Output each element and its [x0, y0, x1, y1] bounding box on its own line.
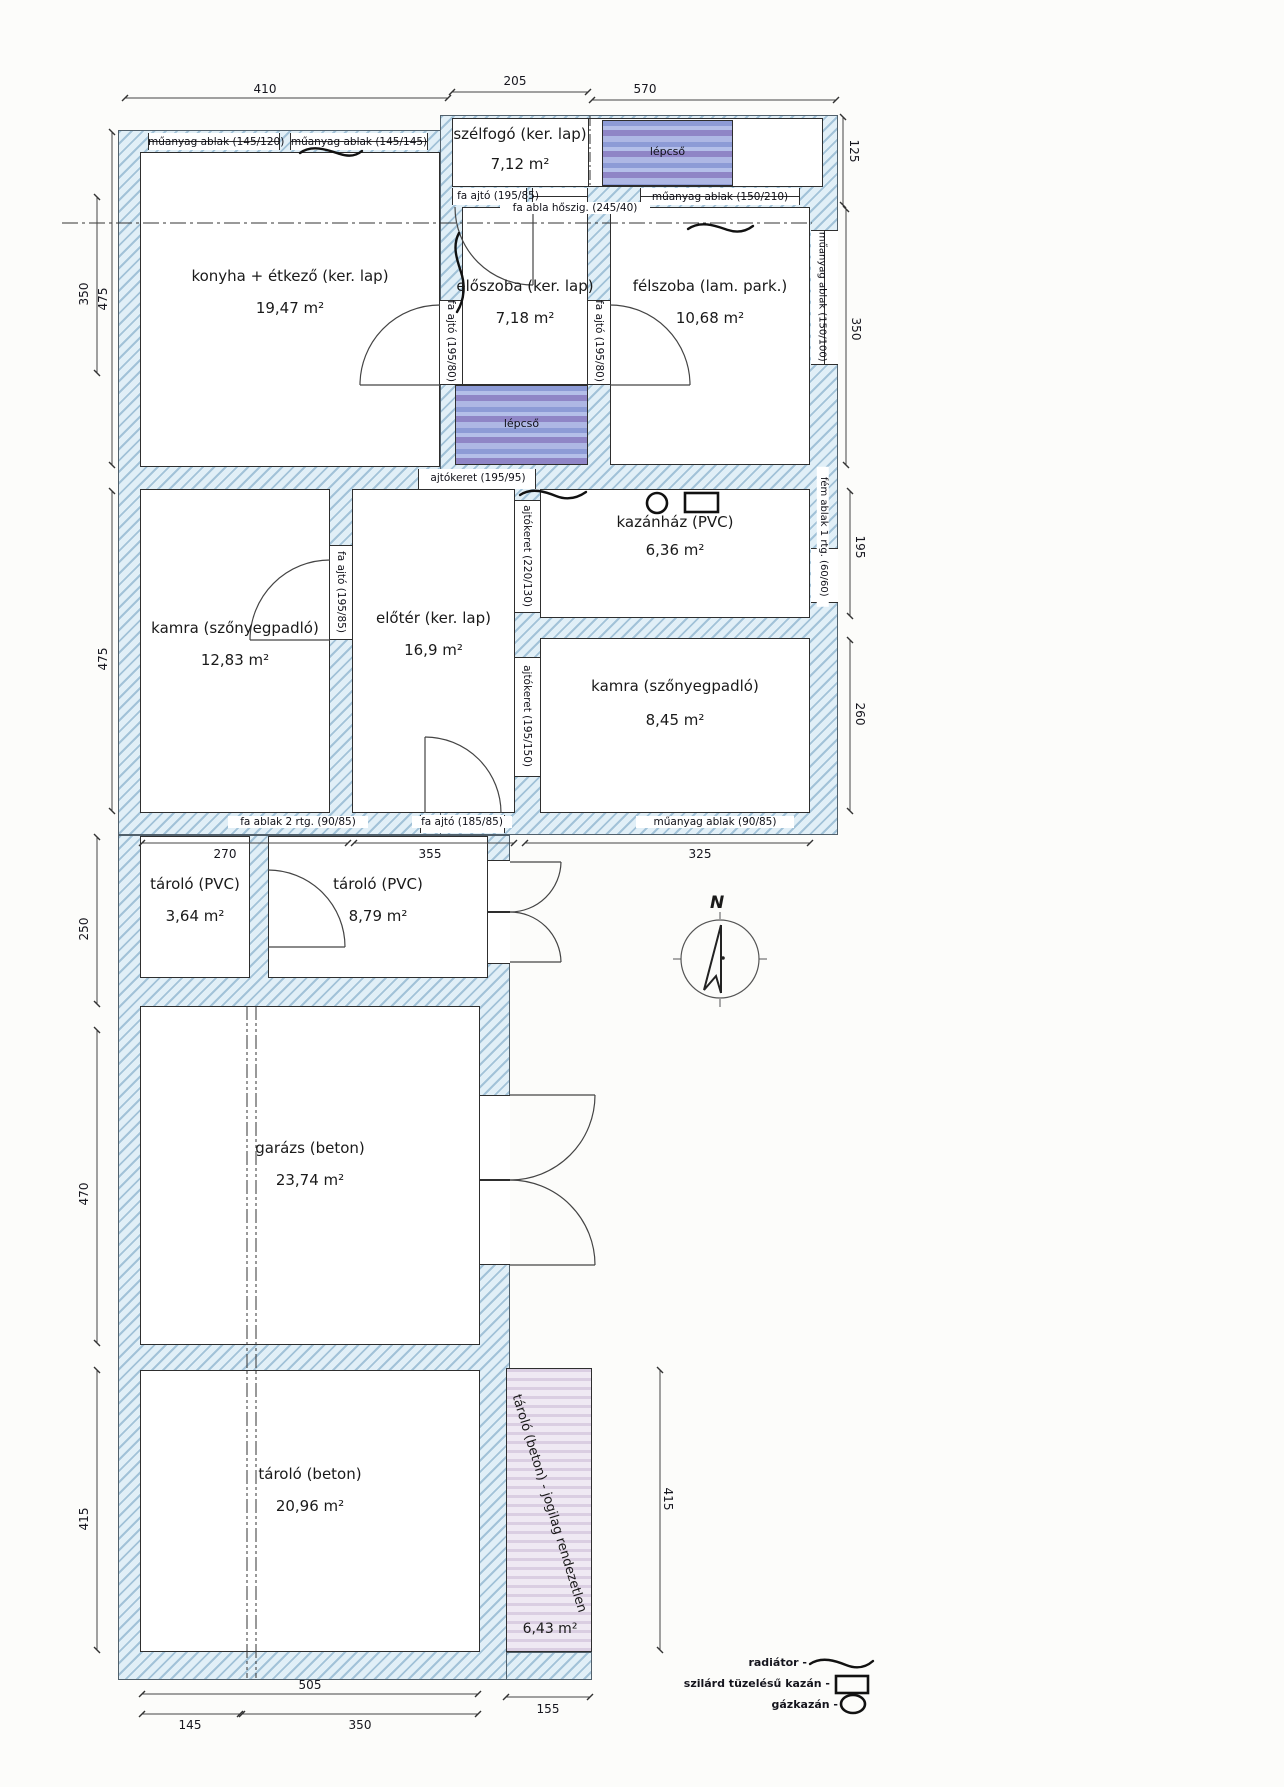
- dim-475-bottom: 475: [96, 639, 110, 679]
- room-label-tarolo364: tároló (PVC): [132, 876, 258, 893]
- room-label-szelfogo: szélfogó (ker. lap): [452, 126, 588, 143]
- room-area-tarolo364: 3,64 m²: [140, 908, 250, 925]
- room-area-felszoba: 10,68 m²: [610, 310, 810, 327]
- room-label-eloszoba: előszoba (ker. lap): [447, 278, 603, 295]
- door-arc-t879-a: [510, 862, 561, 912]
- room-area-eloszoba: 7,18 m²: [462, 310, 588, 327]
- legend-solid-boiler-symbol: [836, 1676, 868, 1693]
- stairs-label-middle: lépcső: [455, 418, 588, 431]
- dim-125: 125: [847, 131, 861, 171]
- label-window-felszoba-right: műanyag ablak (150/100): [816, 229, 828, 364]
- label-window-hoszig: fa abla hőszig. (245/40): [500, 202, 650, 214]
- door-arc-t879-b: [510, 912, 561, 962]
- legend-gas-boiler-label: gázkazán -: [560, 1698, 838, 1711]
- room-area-szelfogo: 7,12 m²: [452, 156, 588, 173]
- label-doorframe-lower: ajtókeret (195/150): [521, 661, 533, 771]
- room-label-felszoba: félszoba (lam. park.): [610, 278, 810, 295]
- dim-355: 355: [400, 847, 460, 861]
- room-label-kamra845: kamra (szőnyegpadló): [540, 678, 810, 695]
- dim-470: 470: [77, 1174, 91, 1214]
- label-window-bottom-left: fa ablak 2 rtg. (90/85): [228, 816, 368, 828]
- room-area-tarolo-jogilag: 6,43 m²: [505, 1622, 595, 1637]
- room-label-eloter: előtér (ker. lap): [352, 610, 515, 627]
- dim-415-left: 415: [77, 1499, 91, 1539]
- label-window-bottom-right: műanyag ablak (90/85): [636, 816, 794, 828]
- label-window-lepcso: műanyag ablak (150/210): [638, 191, 802, 203]
- room-area-garazs: 23,74 m²: [140, 1172, 480, 1189]
- room-label-kamra12: kamra (szőnyegpadló): [140, 620, 330, 637]
- dim-350-left: 350: [77, 274, 91, 314]
- dim-570: 570: [625, 82, 665, 96]
- room-area-kamra12: 12,83 m²: [140, 652, 330, 669]
- dim-145: 145: [160, 1718, 220, 1732]
- dim-475-top: 475: [96, 279, 110, 319]
- room-area-kazanhaz: 6,36 m²: [540, 542, 810, 559]
- label-door-eloszoba-left: fa ajtó (195/80): [445, 296, 457, 386]
- dim-415-right: 415: [661, 1479, 675, 1519]
- label-door-kamra: fa ajtó (195/85): [335, 547, 347, 637]
- door-gap-t879-a: [488, 860, 510, 912]
- room-area-kamra845: 8,45 m²: [540, 712, 810, 729]
- bottom-wall-extension: [506, 1652, 592, 1680]
- dim-195: 195: [853, 527, 867, 567]
- room-label-tarolo879: tároló (PVC): [268, 876, 488, 893]
- legend-solid-boiler-label: szilárd tüzelésű kazán -: [560, 1677, 830, 1690]
- door-arc-garazs-b: [510, 1180, 595, 1265]
- label-window-konyha-2: műanyag ablak (145/145): [290, 136, 428, 148]
- room-label-kazanhaz: kazánház (PVC): [540, 514, 810, 531]
- label-mid-doorframe: ajtókeret (195/95): [420, 472, 536, 484]
- dim-250: 250: [77, 909, 91, 949]
- stairs-label-top: lépcső: [602, 146, 733, 159]
- room-felszoba: [610, 207, 810, 465]
- label-door-bottom: fa ajtó (185/85): [412, 816, 512, 828]
- room-label-konyha: konyha + étkező (ker. lap): [140, 268, 440, 285]
- room-area-tarolobeton: 20,96 m²: [140, 1498, 480, 1515]
- dim-260: 260: [853, 694, 867, 734]
- room-area-eloter: 16,9 m²: [352, 642, 515, 659]
- room-area-tarolo879: 8,79 m²: [268, 908, 488, 925]
- label-door-eloszoba-right: fa ajtó (195/80): [593, 296, 605, 386]
- label-door-szelfogo: fa ajtó (195/85): [448, 190, 548, 202]
- dim-350-right: 350: [849, 309, 863, 349]
- room-area-konyha: 19,47 m²: [140, 300, 440, 317]
- north-compass-icon: [673, 912, 767, 1007]
- door-gap-t879-b: [488, 912, 510, 964]
- label-window-konyha-1: műanyag ablak (145/120): [148, 136, 280, 148]
- dim-270: 270: [195, 847, 255, 861]
- legend-radiator-symbol: [810, 1660, 873, 1668]
- label-window-kazanhaz: fém ablak 1 rtg. (60/60): [817, 467, 829, 607]
- legend-gas-boiler-symbol: [841, 1695, 865, 1713]
- legend-radiator-label: radiátor -: [600, 1656, 807, 1669]
- north-label: N: [710, 893, 724, 913]
- floor-plan-canvas: szélfogó (ker. lap) 7,12 m² konyha + étk…: [0, 0, 1284, 1787]
- dim-205: 205: [495, 74, 535, 88]
- room-eloszoba: [462, 207, 588, 385]
- door-gap-garazs-b: [480, 1180, 510, 1265]
- dim-410: 410: [245, 82, 285, 96]
- dim-350-bottom: 350: [330, 1718, 390, 1732]
- room-label-tarolobeton: tároló (beton): [140, 1466, 480, 1483]
- door-arc-garazs-a: [510, 1095, 595, 1180]
- dim-325: 325: [670, 847, 730, 861]
- door-gap-garazs-a: [480, 1095, 510, 1180]
- label-doorframe-upper: ajtókeret (220/130): [521, 501, 533, 611]
- room-label-garazs: garázs (beton): [140, 1140, 480, 1157]
- dim-505: 505: [280, 1678, 340, 1692]
